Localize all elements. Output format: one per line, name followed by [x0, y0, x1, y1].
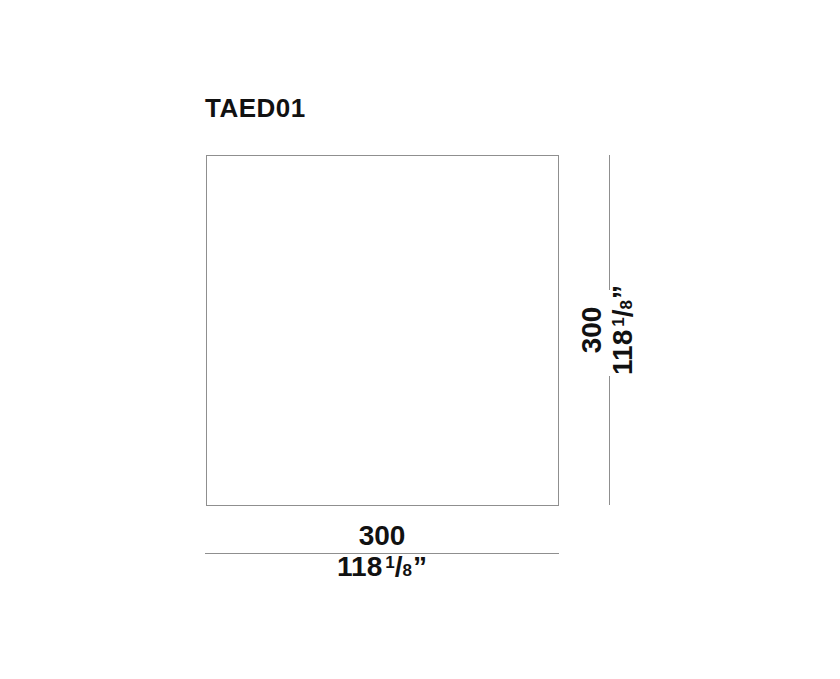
width-inches-whole: 118 [337, 551, 382, 582]
height-inch-mark: ” [607, 285, 638, 299]
height-fraction-denominator: 8 [617, 300, 636, 309]
width-mm-value: 300 [337, 522, 427, 549]
width-inches-value: 1181/8” [337, 549, 427, 584]
width-dimension-label: 300 1181/8” [337, 522, 427, 584]
width-inch-mark: ” [413, 551, 427, 582]
width-fraction-numerator: 1 [385, 553, 394, 572]
width-fraction-denominator: 8 [402, 561, 411, 580]
height-dimension-line-lower-segment [609, 376, 610, 505]
product-code-title: TAED01 [205, 95, 306, 121]
dimension-drawing-canvas: TAED01 300 1181/8” 300 1181/8” [0, 0, 840, 679]
height-fraction-slash: / [607, 310, 638, 318]
panel-outline [206, 155, 559, 506]
height-dimension-line-upper-segment [609, 155, 610, 290]
height-dimension-label: 300 1181/8” [578, 285, 640, 375]
height-fraction-numerator: 1 [609, 317, 628, 326]
height-mm-value: 300 [578, 285, 605, 375]
height-inches-value: 1181/8” [605, 285, 640, 375]
height-inches-whole: 118 [607, 330, 638, 375]
